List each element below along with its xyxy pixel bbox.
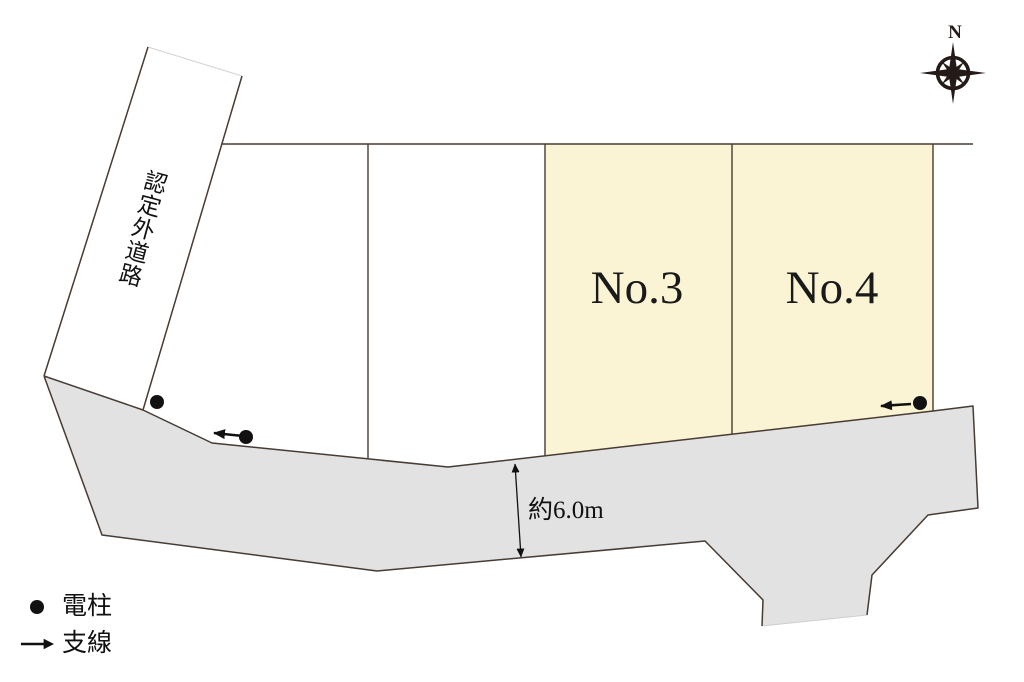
lot-no3-label: No.3: [557, 256, 717, 320]
utility-pole-dot: [913, 396, 927, 410]
lot-no4-label: No.4: [752, 256, 912, 320]
utility-pole-dot: [150, 395, 164, 409]
legend-item-pole: 電柱: [20, 593, 112, 621]
guy-wire-icon: [20, 637, 54, 651]
utility-pole-icon: [20, 600, 54, 614]
legend-wire-label: 支線: [62, 630, 112, 658]
legend: 電柱 支線: [20, 593, 112, 658]
legend-item-wire: 支線: [20, 630, 112, 658]
guy-wire-arrow: [214, 433, 243, 436]
site-plan-drawing: [0, 0, 1024, 682]
compass-north-label: N: [938, 22, 972, 44]
legend-pole-label: 電柱: [62, 593, 112, 621]
compass-rose-icon: [920, 42, 986, 104]
site-plan: N 認定外道路 No.3 No.4 約6.0m 電柱 支線: [0, 0, 1024, 682]
road-width-label: 約6.0m: [528, 490, 604, 526]
